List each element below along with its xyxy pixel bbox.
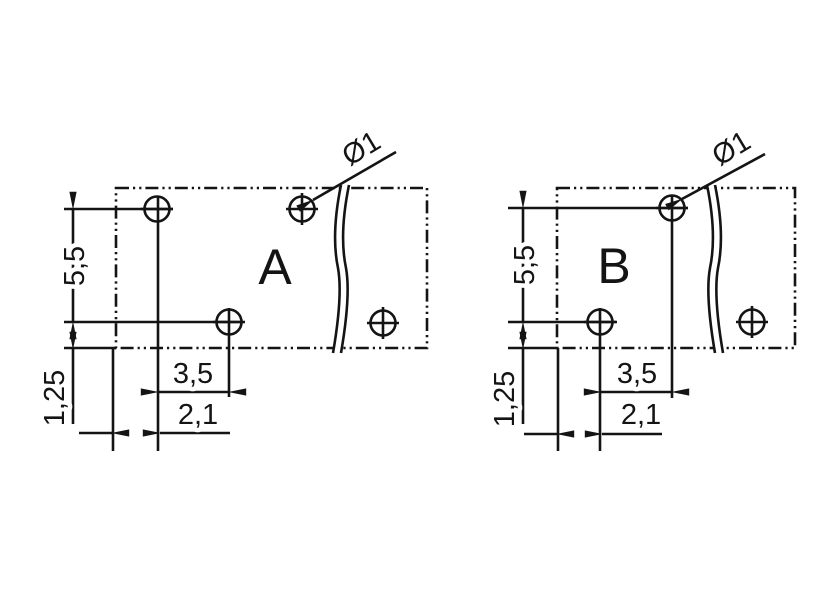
- panel-label: A: [258, 239, 292, 295]
- dim-edge-offset: 1,25: [39, 349, 73, 426]
- plate-outline: [557, 188, 795, 348]
- dim-vertical-pitch: 5,5: [509, 208, 541, 322]
- pin-hole: [367, 307, 399, 339]
- dim-label-horizontal-pitch: 3,5: [617, 358, 657, 390]
- dim-horizontal-pitch: 3,5: [601, 358, 672, 392]
- dim-label-edge-to-first-hole: 2,1: [178, 399, 218, 431]
- drawing-canvas: 5,5 1,25 3,5 2,1 Ø1 A: [0, 0, 835, 595]
- dim-edge-to-first-hole: 2,1: [524, 399, 662, 434]
- dim-label-edge-offset: 1,25: [39, 370, 71, 426]
- panel-a: 5,5 1,25 3,5 2,1 Ø1 A: [39, 125, 427, 451]
- dim-label-horizontal-pitch: 3,5: [173, 358, 213, 390]
- diameter-label: Ø1: [337, 125, 387, 172]
- dim-label-edge-to-first-hole: 2,1: [621, 399, 661, 431]
- pin-hole: [286, 193, 318, 225]
- dim-edge-to-first-hole: 2,1: [79, 399, 230, 433]
- panel-label: B: [597, 238, 630, 294]
- dim-horizontal-pitch: 3,5: [158, 358, 229, 392]
- dim-vertical-pitch: 5,5: [59, 209, 91, 322]
- dim-label-vertical-pitch: 5,5: [509, 245, 541, 285]
- pin-hole: [736, 306, 768, 338]
- drilling-plan-figure: 5,5 1,25 3,5 2,1 Ø1 A: [0, 0, 835, 595]
- diameter-label: Ø1: [707, 125, 757, 172]
- panel-b: 5,5 1,25 3,5 2,1 Ø1 B: [489, 125, 795, 451]
- dim-edge-offset: 1,25: [489, 349, 523, 427]
- dim-label-edge-offset: 1,25: [489, 371, 521, 427]
- dim-label-vertical-pitch: 5,5: [59, 246, 91, 286]
